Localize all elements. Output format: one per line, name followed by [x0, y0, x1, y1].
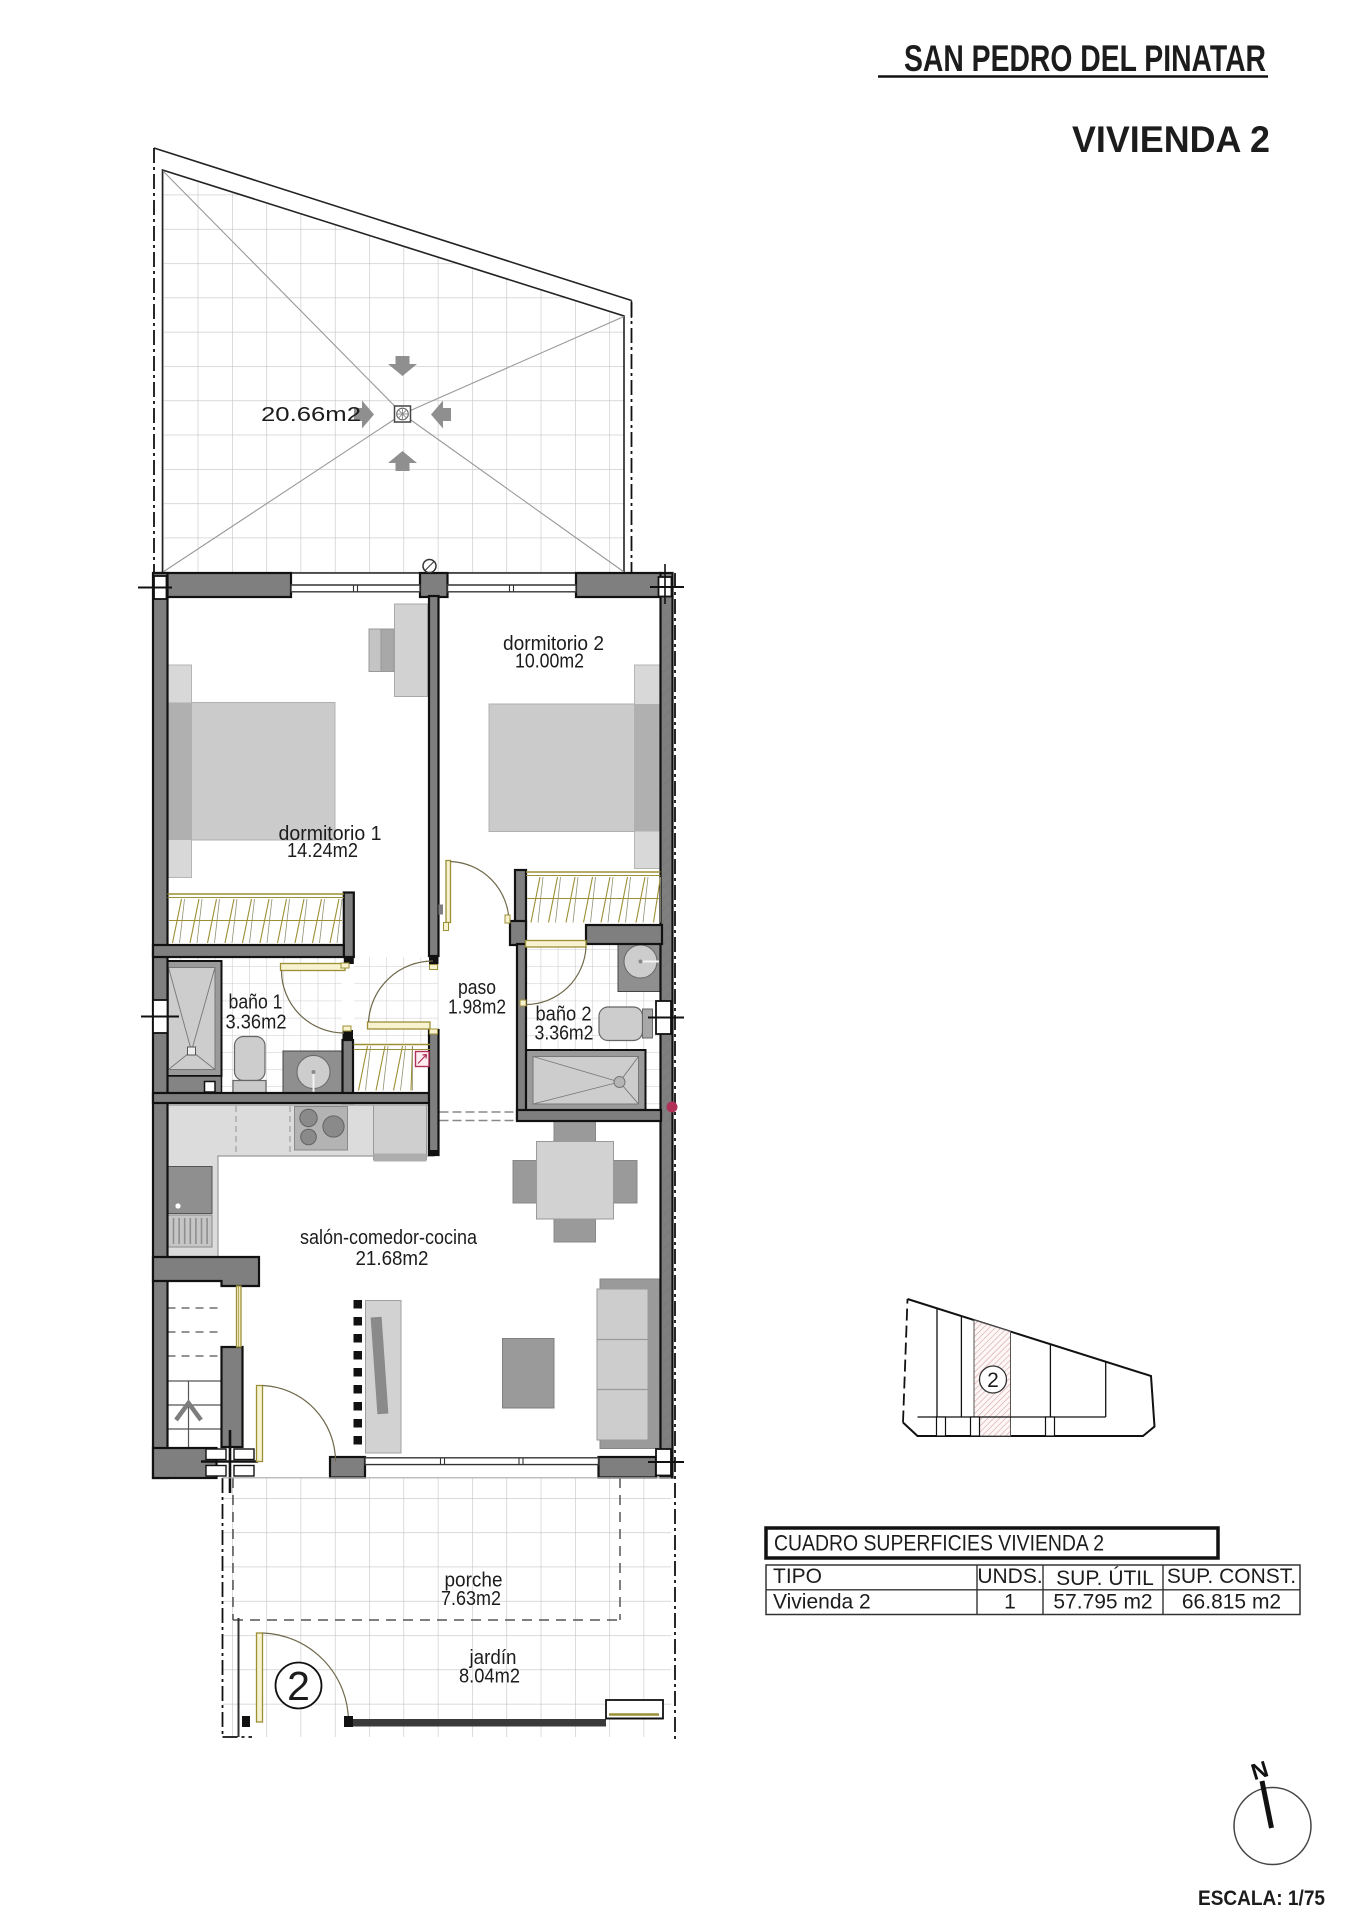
svg-text:2: 2 — [987, 1369, 999, 1392]
svg-text:3.36m2: 3.36m2 — [535, 1023, 594, 1045]
svg-text:UNDS.: UNDS. — [977, 1565, 1042, 1588]
svg-text:SUP. ÚTIL: SUP. ÚTIL — [1056, 1567, 1154, 1590]
svg-text:7.63m2: 7.63m2 — [441, 1588, 501, 1610]
svg-text:TIPO: TIPO — [773, 1565, 822, 1588]
svg-text:1: 1 — [1004, 1591, 1016, 1614]
svg-text:ESCALA: 1/75: ESCALA: 1/75 — [1198, 1886, 1325, 1910]
svg-text:SUP. CONST.: SUP. CONST. — [1167, 1565, 1296, 1588]
svg-text:20.66m2: 20.66m2 — [261, 404, 361, 426]
svg-text:57.795 m2: 57.795 m2 — [1053, 1591, 1152, 1614]
svg-text:10.00m2: 10.00m2 — [515, 651, 584, 673]
svg-text:baño 1: baño 1 — [229, 992, 283, 1014]
svg-text:Vivienda 2: Vivienda 2 — [773, 1591, 871, 1614]
svg-text:2: 2 — [287, 1663, 310, 1709]
svg-text:1.98m2: 1.98m2 — [448, 997, 506, 1019]
svg-text:salón-comedor-cocina: salón-comedor-cocina — [300, 1227, 478, 1249]
svg-text:SAN PEDRO DEL PINATAR: SAN PEDRO DEL PINATAR — [904, 38, 1266, 79]
svg-text:66.815 m2: 66.815 m2 — [1182, 1591, 1281, 1614]
svg-text:14.24m2: 14.24m2 — [287, 840, 358, 862]
svg-text:3.36m2: 3.36m2 — [226, 1012, 287, 1034]
svg-text:CUADRO SUPERFICIES VIVIENDA 2: CUADRO SUPERFICIES VIVIENDA 2 — [774, 1531, 1104, 1556]
svg-text:21.68m2: 21.68m2 — [356, 1248, 429, 1270]
svg-text:VIVIENDA 2: VIVIENDA 2 — [1072, 119, 1270, 160]
svg-text:8.04m2: 8.04m2 — [459, 1666, 520, 1688]
